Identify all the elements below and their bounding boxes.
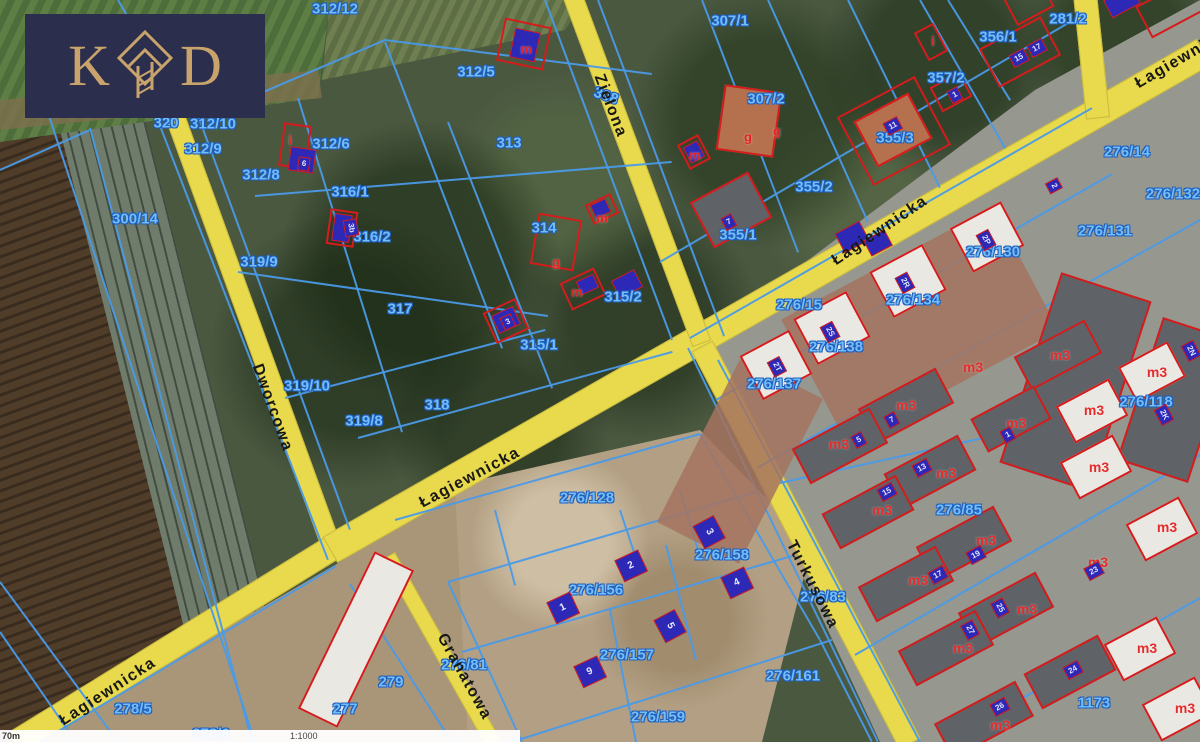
building-number-chip: 3	[692, 515, 725, 549]
building-type-label: i	[288, 133, 292, 148]
road-name-label: Dworcowa	[248, 362, 296, 455]
building-type-label: m3	[872, 502, 892, 518]
parcel-label: 276/131	[1078, 223, 1132, 240]
parcel-label: 315/1	[520, 337, 558, 354]
parcel-label: 312/6	[312, 136, 350, 153]
road-name-label: Łagiewnicka	[829, 192, 932, 269]
parcel-label: 279	[378, 674, 403, 691]
parcel-label: 276/138	[809, 339, 863, 356]
parcel-label: 315/2	[604, 289, 642, 306]
parcel-label: 319/9	[240, 254, 278, 271]
building-type-label: m3	[1147, 364, 1167, 380]
map-viewport[interactable]: 320312/10312/12312/9312/8312/6312/531330…	[0, 0, 1200, 742]
scale-distance-label: 70m	[2, 731, 20, 741]
parcel-label: 278/5	[114, 701, 152, 718]
building-type-label: m3	[1050, 347, 1070, 363]
building-number-chip: 15	[876, 482, 897, 502]
parcel-label: 307/1	[711, 13, 749, 30]
building-type-label: m3	[1137, 640, 1157, 656]
building-number-chip: 3	[499, 313, 516, 331]
parcel-label: 276/128	[560, 490, 614, 507]
parcel-label: 276/134	[886, 292, 940, 309]
scale-bar: 70m 1:1000	[0, 730, 520, 742]
road-name-label: Łagiewnicka	[1132, 21, 1200, 92]
building-number-chip: 5	[850, 431, 868, 449]
road-name-label: Zielona	[590, 72, 631, 141]
parcel-label: 276/132	[1146, 186, 1200, 203]
road-name-label: Granatowa	[433, 631, 495, 724]
parcel-label: 277	[332, 701, 357, 718]
logo-letter-k: K	[68, 37, 110, 95]
building-type-label: m3	[1017, 601, 1037, 617]
building-number-chip: 24	[1062, 660, 1084, 680]
parcel-label: 317	[387, 301, 412, 318]
building-number-chip: 2	[614, 550, 647, 583]
parcel-label: 355/2	[795, 179, 833, 196]
building-type-label: m3	[829, 436, 849, 452]
parcel-label: 281/2	[1049, 11, 1087, 28]
building-type-label: m3	[1084, 402, 1104, 418]
building-type-label: i	[931, 34, 935, 49]
building-type-label: m3	[953, 640, 973, 656]
building-number-chip: 17	[1026, 38, 1048, 58]
building-type-label: m3	[1089, 459, 1109, 475]
building-number-chip: 5	[653, 609, 686, 643]
parcel-label: 319/10	[284, 378, 330, 395]
parcel-label: 356/1	[979, 29, 1017, 46]
parcel-label: 276/156	[569, 582, 623, 599]
parcel-label: 1173	[1078, 695, 1111, 712]
parcel-label: 312/10	[190, 116, 236, 133]
parcel-label: 316/1	[331, 184, 369, 201]
brand-logo: K D	[25, 14, 265, 118]
parcel-label: 312/9	[184, 141, 222, 158]
building-type-label: m3	[990, 717, 1010, 733]
logo-letter-d: D	[180, 37, 222, 95]
road-name-label: Łagiewnicka	[416, 444, 523, 512]
building-type-label: m	[689, 148, 701, 163]
parcel-label: 276/15	[776, 297, 822, 314]
building-number-chip: 7	[883, 411, 901, 429]
building-type-label: m3	[1157, 519, 1177, 535]
parcel-label: 357/2	[927, 70, 965, 87]
building-number-chip: 3b	[343, 218, 360, 238]
building-number-chip: 13	[911, 458, 932, 478]
building-type-label: m3	[896, 397, 916, 413]
building-type-label: m3	[963, 359, 983, 375]
parcel-label: 300/14	[112, 211, 158, 228]
parcel-label: 318	[424, 397, 449, 414]
building-type-label: m3	[1175, 700, 1195, 716]
building-type-label: m	[596, 211, 608, 226]
road-name-label: Łagiewnicka	[56, 654, 159, 730]
building-type-label: m	[571, 285, 583, 300]
building-number-chip: 4	[720, 567, 753, 600]
parcel-label: 276/158	[695, 547, 749, 564]
building-number-chip: 27	[960, 619, 980, 640]
road-name-label: Turkusowa	[782, 538, 842, 632]
parcel-label: 276/14	[1104, 144, 1150, 161]
parcel-label: 276/161	[766, 668, 820, 685]
building-type-label: g	[552, 255, 560, 270]
building-number-chip: 2N	[1181, 340, 1200, 363]
building-number-chip: 1	[946, 86, 964, 104]
building-number-chip: 15	[1008, 48, 1029, 68]
building-number-chip: 25	[990, 597, 1010, 618]
building-type-label: m3	[908, 572, 928, 588]
building-type-label: m3	[936, 465, 956, 481]
building-type-label: g	[744, 130, 752, 145]
building-number-chip: 26	[989, 697, 1010, 717]
building-number-chip: 2	[1045, 177, 1063, 195]
parcel-label: 312/8	[242, 167, 280, 184]
building-number-chip: 17	[927, 565, 948, 585]
parcel-label: 276/85	[936, 502, 982, 519]
diamond-house-icon	[114, 26, 176, 106]
parcel-label: 314	[531, 220, 556, 237]
scale-ratio-label: 1:1000	[290, 731, 318, 741]
parcel-label: 276/157	[600, 647, 654, 664]
parcel-label: 312/12	[312, 1, 358, 18]
parcel-label: 307/2	[747, 91, 785, 108]
parcel-label: 276/159	[631, 709, 685, 726]
parcel-label: 312/5	[457, 64, 495, 81]
parcel-label: 319/8	[345, 413, 383, 430]
building-number-chip: 6	[297, 156, 311, 172]
parcel-label: 316/2	[353, 229, 391, 246]
building-type-label: g	[773, 124, 781, 139]
building-type-label: m	[520, 42, 532, 57]
parcel-label: 313	[496, 135, 521, 152]
